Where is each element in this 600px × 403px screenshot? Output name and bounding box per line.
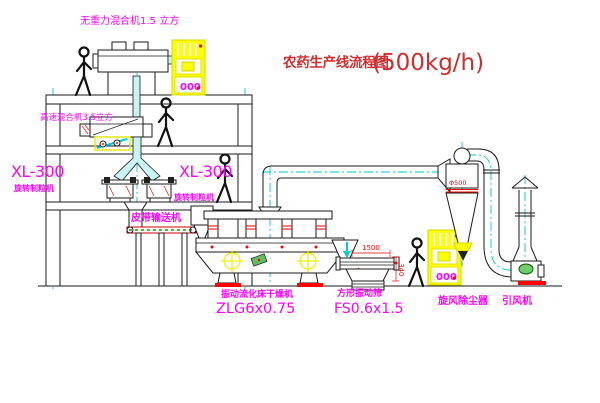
- belt-conveyor: [127, 227, 196, 286]
- mixer-feed-pipe: [133, 76, 140, 118]
- label-belt-conveyor: 皮带输送机: [130, 211, 181, 224]
- label-sieve-name: 方形振动筛: [337, 287, 382, 299]
- person-icon-roof: [76, 48, 91, 96]
- dim-sieve-height: 340: [397, 263, 405, 276]
- label-cyclone: 旋风除尘器: [437, 294, 489, 307]
- control-cabinet-lower: [428, 230, 461, 285]
- fluid-bed-dryer: [196, 211, 358, 287]
- label-granulator-model-left: XL-300: [11, 162, 64, 181]
- label-sieve-model: FS0.6x1.5: [334, 301, 404, 317]
- label-granulator-model-right: XL-300: [179, 162, 232, 181]
- person-icon-ground: [409, 239, 424, 287]
- page-title-capacity: (500kg/h): [372, 50, 484, 76]
- dim-sieve-length: 1500: [362, 244, 380, 252]
- exhaust-duct: [259, 159, 450, 218]
- flow-diagram-canvas: 000: [0, 0, 600, 403]
- label-dryer-model: ZLG6x0.75: [216, 301, 295, 317]
- label-granulator-name-right: 旋转制粒机: [173, 192, 214, 202]
- granulator-left: [102, 177, 138, 202]
- person-icon-floor2: [158, 99, 173, 147]
- granulator-right: [142, 177, 176, 202]
- label-top-mixer: 无重力混合机1.5 立方: [80, 14, 179, 27]
- label-fan: 引风机: [502, 294, 532, 307]
- control-cabinet-upper: [172, 40, 205, 95]
- y-chute: [114, 137, 160, 181]
- label-granulator-name-left: 旋转制粒机: [13, 183, 54, 193]
- label-dryer-name: 振动流化床干燥机: [221, 288, 293, 300]
- label-floor2-mixer: 高速混合机3.5立方: [40, 112, 113, 123]
- dim-cyclone-diameter: Φ500: [449, 179, 467, 187]
- production-line-drawing: 000: [0, 0, 600, 403]
- induced-draft-fan: [511, 261, 546, 285]
